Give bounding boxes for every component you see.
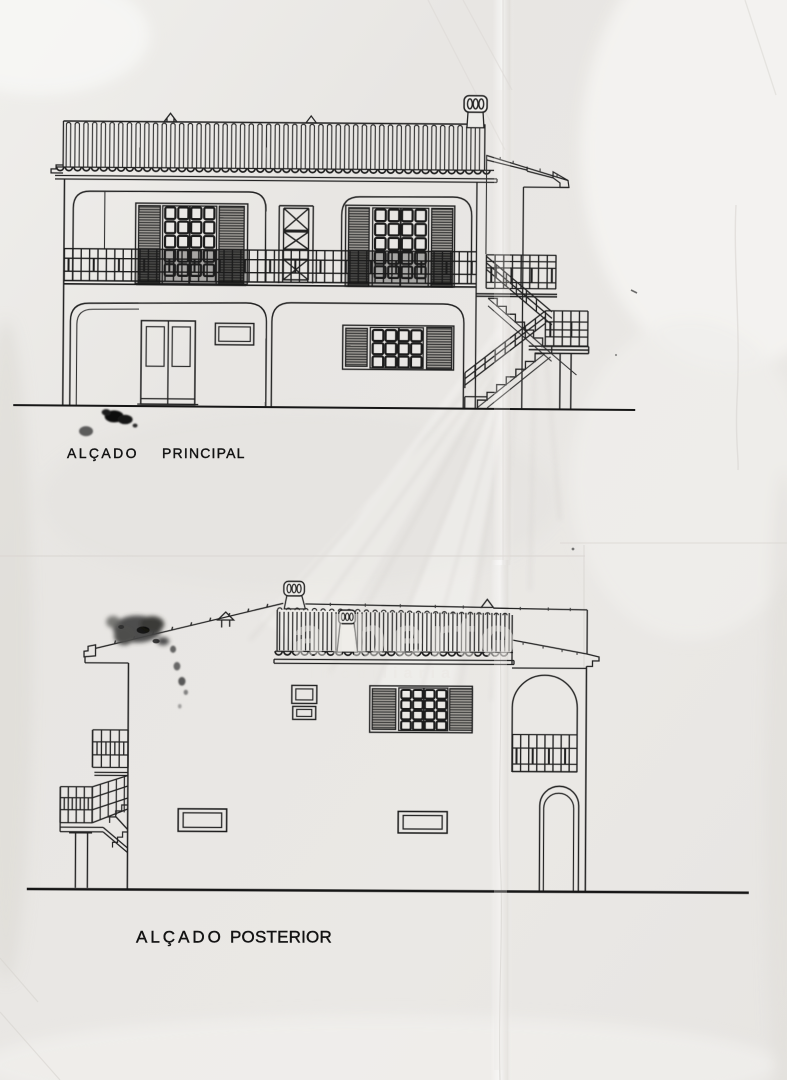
svg-text:imobiliaria: imobiliaria: [310, 665, 456, 682]
svg-text:ALÇADO: ALÇADO: [136, 928, 224, 947]
svg-text:PRINCIPAL: PRINCIPAL: [162, 445, 246, 461]
svg-text:ALÇADO: ALÇADO: [67, 445, 139, 461]
svg-text:alberto: alberto: [292, 604, 520, 671]
svg-text:POSTERIOR: POSTERIOR: [230, 928, 332, 947]
